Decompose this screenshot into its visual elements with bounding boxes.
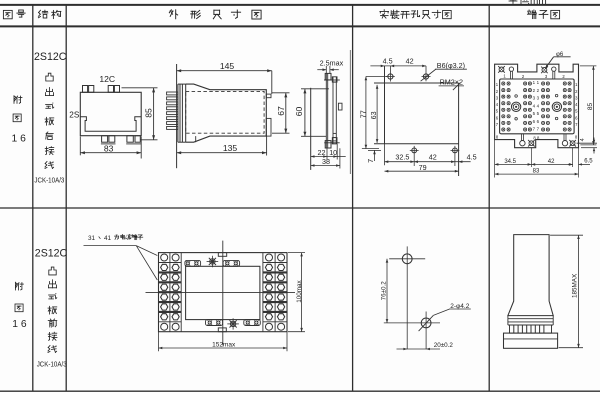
- svg-text:3: 3: [533, 96, 536, 101]
- svg-text:85: 85: [144, 108, 154, 118]
- svg-text:60: 60: [294, 107, 304, 117]
- svg-text:1: 1: [533, 80, 536, 85]
- svg-text:7: 7: [537, 127, 540, 132]
- svg-text:10: 10: [329, 148, 337, 157]
- svg-text:2: 2: [562, 74, 565, 79]
- svg-text:185MAX: 185MAX: [572, 273, 579, 298]
- svg-text:79: 79: [419, 163, 427, 172]
- svg-text:3: 3: [575, 95, 578, 100]
- svg-text:7: 7: [575, 122, 578, 127]
- svg-text:41: 41: [104, 235, 112, 242]
- svg-text:6.5: 6.5: [584, 159, 593, 165]
- svg-text:145: 145: [220, 61, 235, 71]
- svg-text:1: 1: [496, 82, 499, 87]
- svg-text:63: 63: [369, 111, 378, 119]
- svg-text:76±0.2: 76±0.2: [381, 281, 388, 301]
- svg-text:2: 2: [537, 88, 540, 93]
- svg-text:34.5: 34.5: [504, 159, 516, 165]
- svg-text:31: 31: [88, 235, 96, 242]
- svg-text:6: 6: [533, 119, 536, 124]
- svg-text:4: 4: [533, 103, 536, 108]
- svg-text:JCK-10A/3: JCK-10A/3: [37, 361, 67, 368]
- svg-text:3: 3: [537, 96, 540, 101]
- svg-text:83: 83: [104, 143, 114, 153]
- svg-text:2S12C: 2S12C: [34, 51, 67, 63]
- svg-text:152max: 152max: [212, 342, 236, 349]
- svg-text:42: 42: [429, 152, 437, 161]
- svg-text:42: 42: [548, 159, 555, 165]
- svg-text:77: 77: [359, 110, 368, 118]
- svg-text:8: 8: [575, 135, 578, 140]
- svg-text:6: 6: [537, 119, 540, 124]
- svg-text:4: 4: [537, 103, 540, 108]
- svg-text:2: 2: [496, 89, 499, 94]
- svg-text:67: 67: [276, 106, 286, 116]
- svg-text:7: 7: [496, 122, 499, 127]
- svg-text:2S: 2S: [69, 110, 80, 119]
- svg-text:5: 5: [533, 111, 536, 116]
- svg-text:2: 2: [522, 74, 525, 79]
- svg-text:1: 1: [575, 82, 578, 87]
- svg-text:2.5max: 2.5max: [320, 58, 344, 67]
- svg-text:5: 5: [537, 111, 540, 116]
- svg-text:7: 7: [533, 127, 536, 132]
- svg-text:100max: 100max: [296, 279, 303, 302]
- svg-text:2: 2: [575, 89, 578, 94]
- svg-text:4: 4: [496, 102, 499, 107]
- svg-text:135: 135: [223, 143, 238, 153]
- svg-text:4.5: 4.5: [467, 152, 477, 161]
- svg-text:1 6: 1 6: [12, 134, 27, 145]
- svg-text:JCK-10A/3: JCK-10A/3: [34, 178, 64, 185]
- svg-text:5: 5: [575, 109, 578, 114]
- svg-text:85: 85: [587, 103, 594, 111]
- svg-text:32.5: 32.5: [395, 153, 409, 162]
- svg-text:2: 2: [533, 88, 536, 93]
- svg-text:6: 6: [496, 115, 499, 120]
- svg-text:6: 6: [575, 115, 578, 120]
- svg-text:1 6: 1 6: [12, 319, 27, 330]
- svg-text:4: 4: [575, 102, 578, 107]
- svg-text:4.5: 4.5: [383, 56, 393, 65]
- svg-text:B6(φ3.2): B6(φ3.2): [437, 61, 465, 70]
- svg-text:4: 4: [580, 138, 586, 141]
- svg-text:38: 38: [322, 157, 330, 166]
- svg-text::mm: :mm: [527, 0, 546, 7]
- svg-text:RM2×2: RM2×2: [440, 77, 463, 86]
- svg-text:8: 8: [496, 135, 499, 140]
- svg-text:22: 22: [318, 148, 326, 157]
- svg-text:20±0.2: 20±0.2: [434, 342, 454, 349]
- svg-text:12C: 12C: [99, 74, 115, 84]
- svg-text:83: 83: [533, 168, 540, 174]
- svg-text:7: 7: [366, 159, 375, 163]
- svg-text:1: 1: [537, 80, 540, 85]
- svg-text:3: 3: [545, 74, 548, 79]
- svg-text:42: 42: [406, 56, 414, 65]
- svg-text:2S12C: 2S12C: [35, 248, 68, 260]
- svg-text:1: 1: [503, 73, 506, 78]
- svg-text:3: 3: [496, 95, 499, 100]
- svg-text:5: 5: [496, 109, 499, 114]
